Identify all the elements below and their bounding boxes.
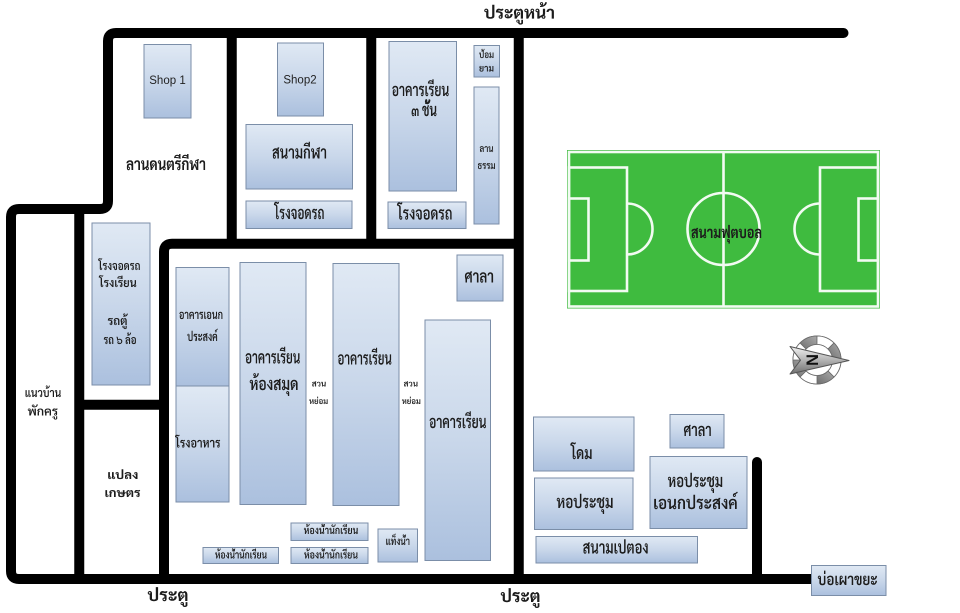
svg-text:Shop 1: Shop 1	[149, 75, 185, 87]
svg-text:Shop2: Shop2	[283, 75, 316, 87]
svg-text:N: N	[803, 354, 821, 366]
